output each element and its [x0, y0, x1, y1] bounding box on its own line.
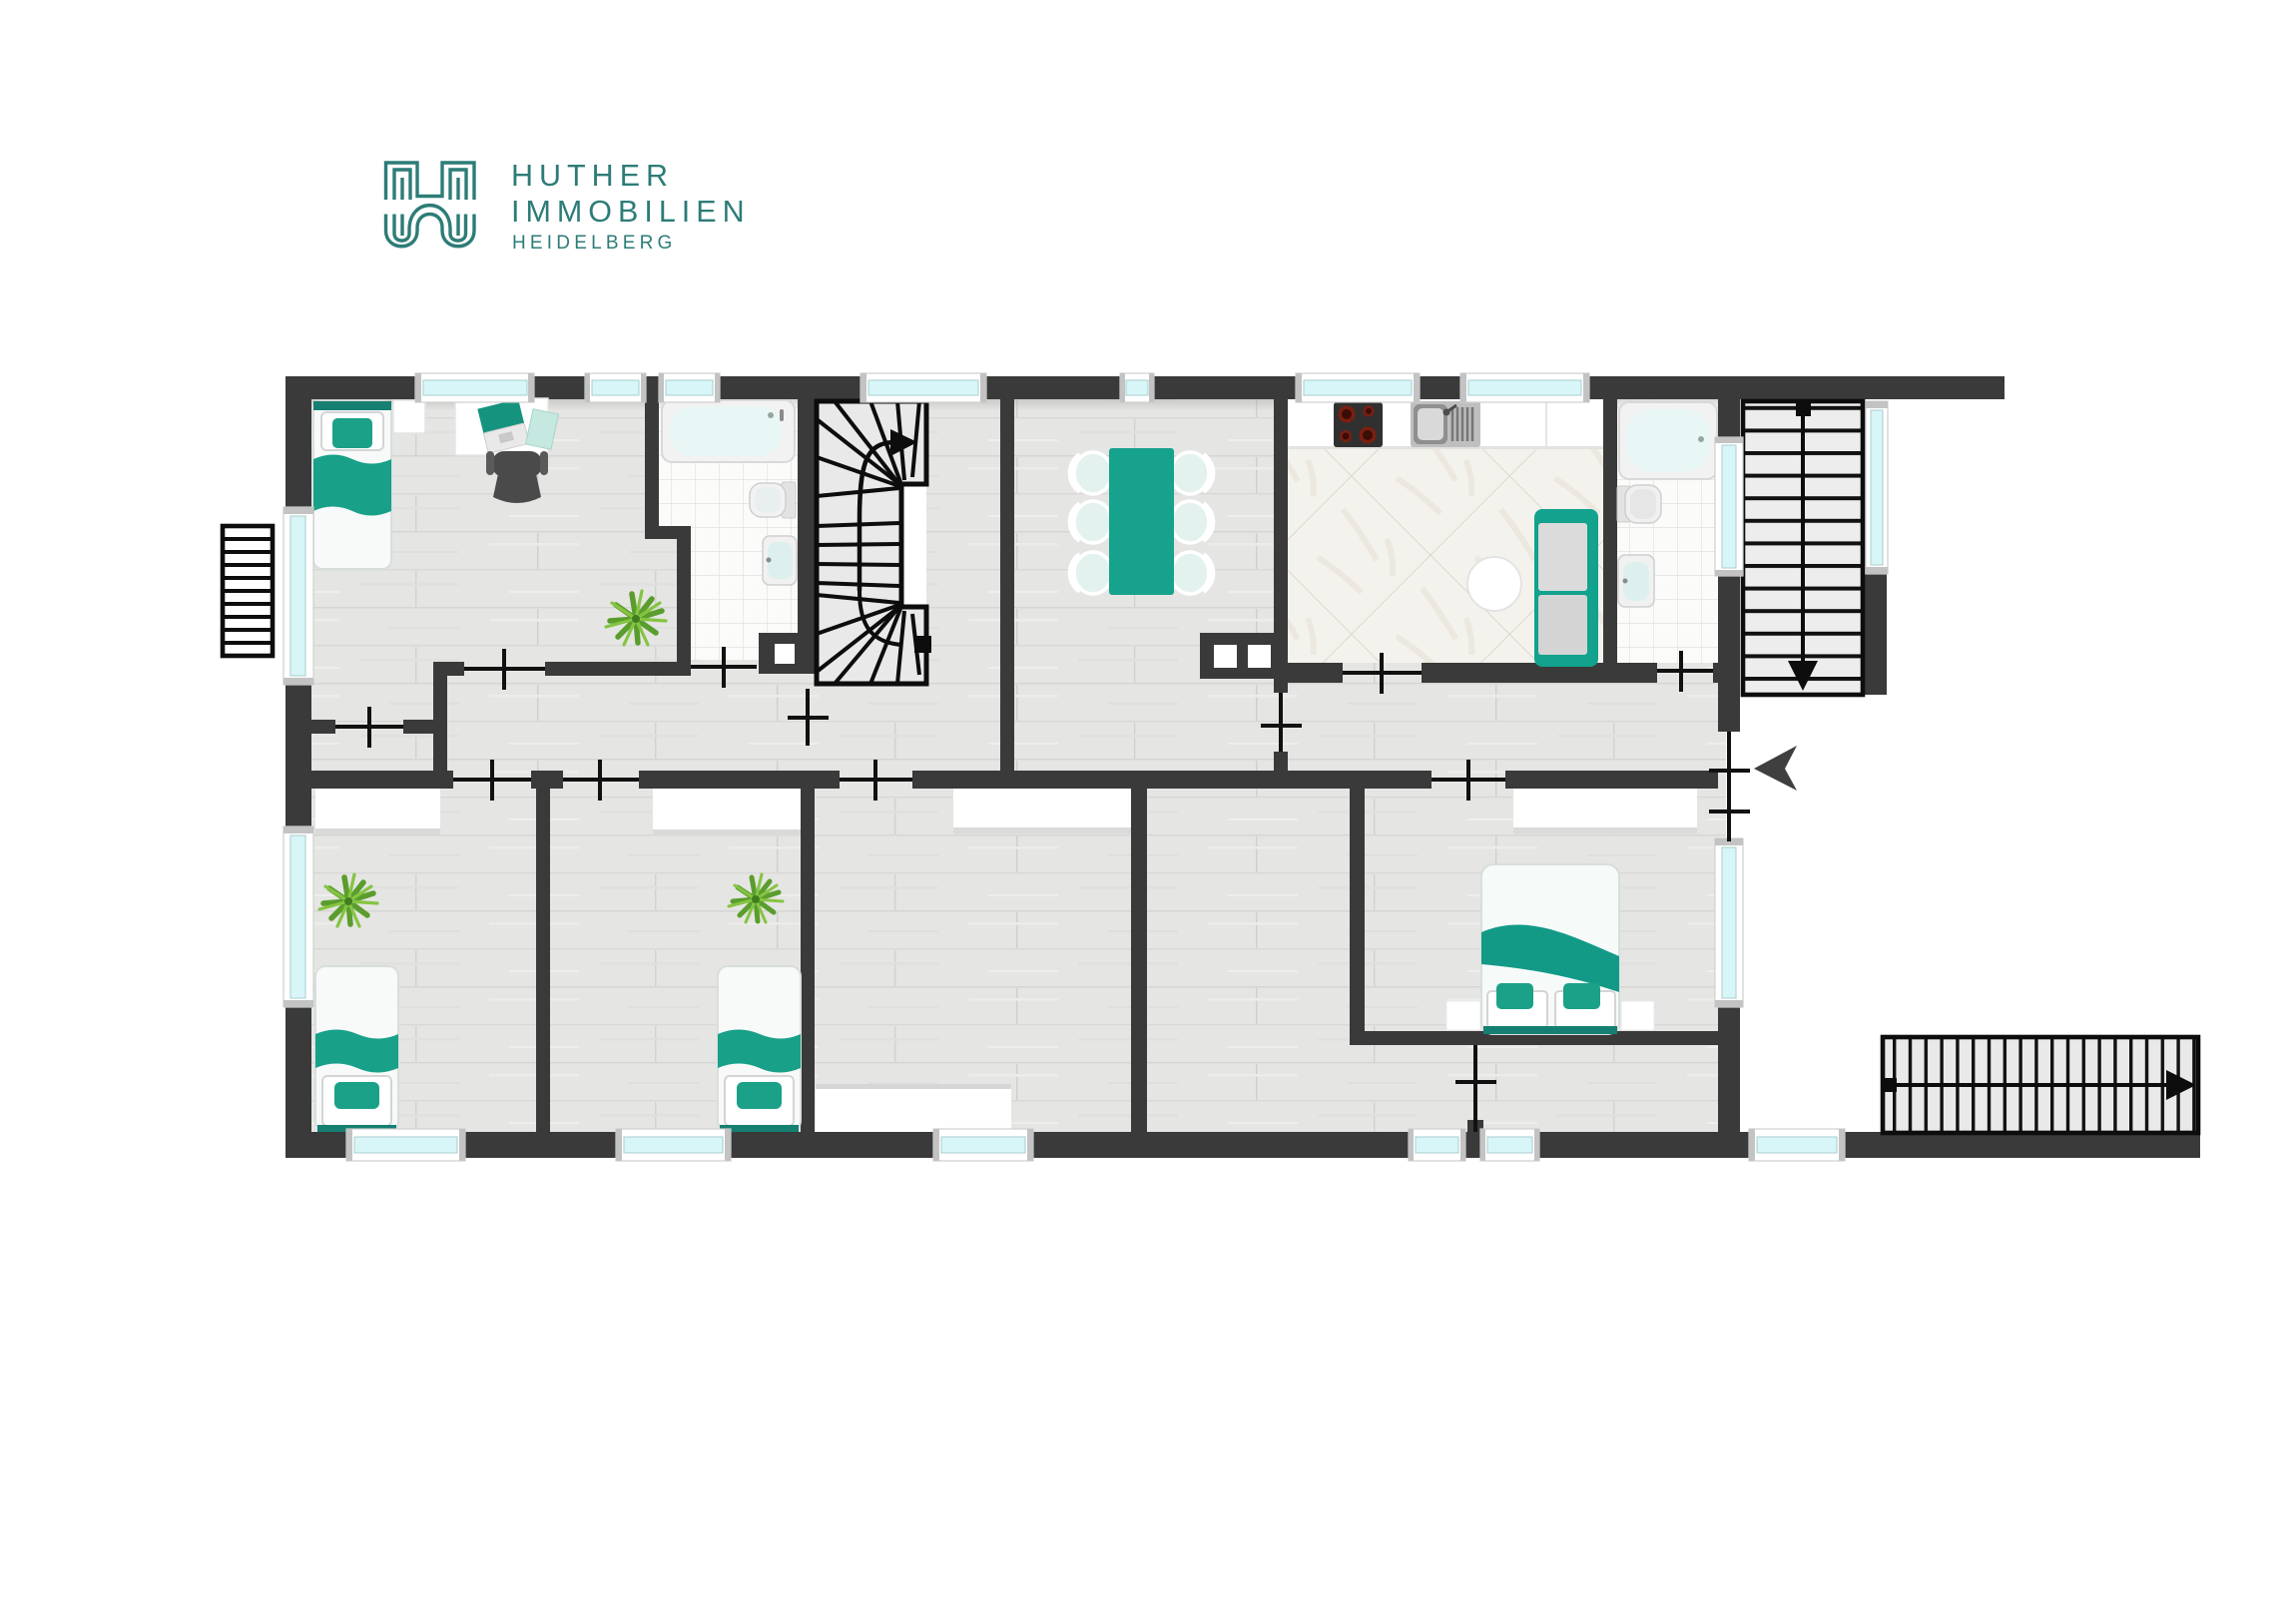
- svg-text:HEIDELBERG: HEIDELBERG: [512, 233, 676, 254]
- svg-text:HUTHER: HUTHER: [511, 159, 674, 193]
- svg-text:IMMOBILIEN: IMMOBILIEN: [511, 195, 751, 229]
